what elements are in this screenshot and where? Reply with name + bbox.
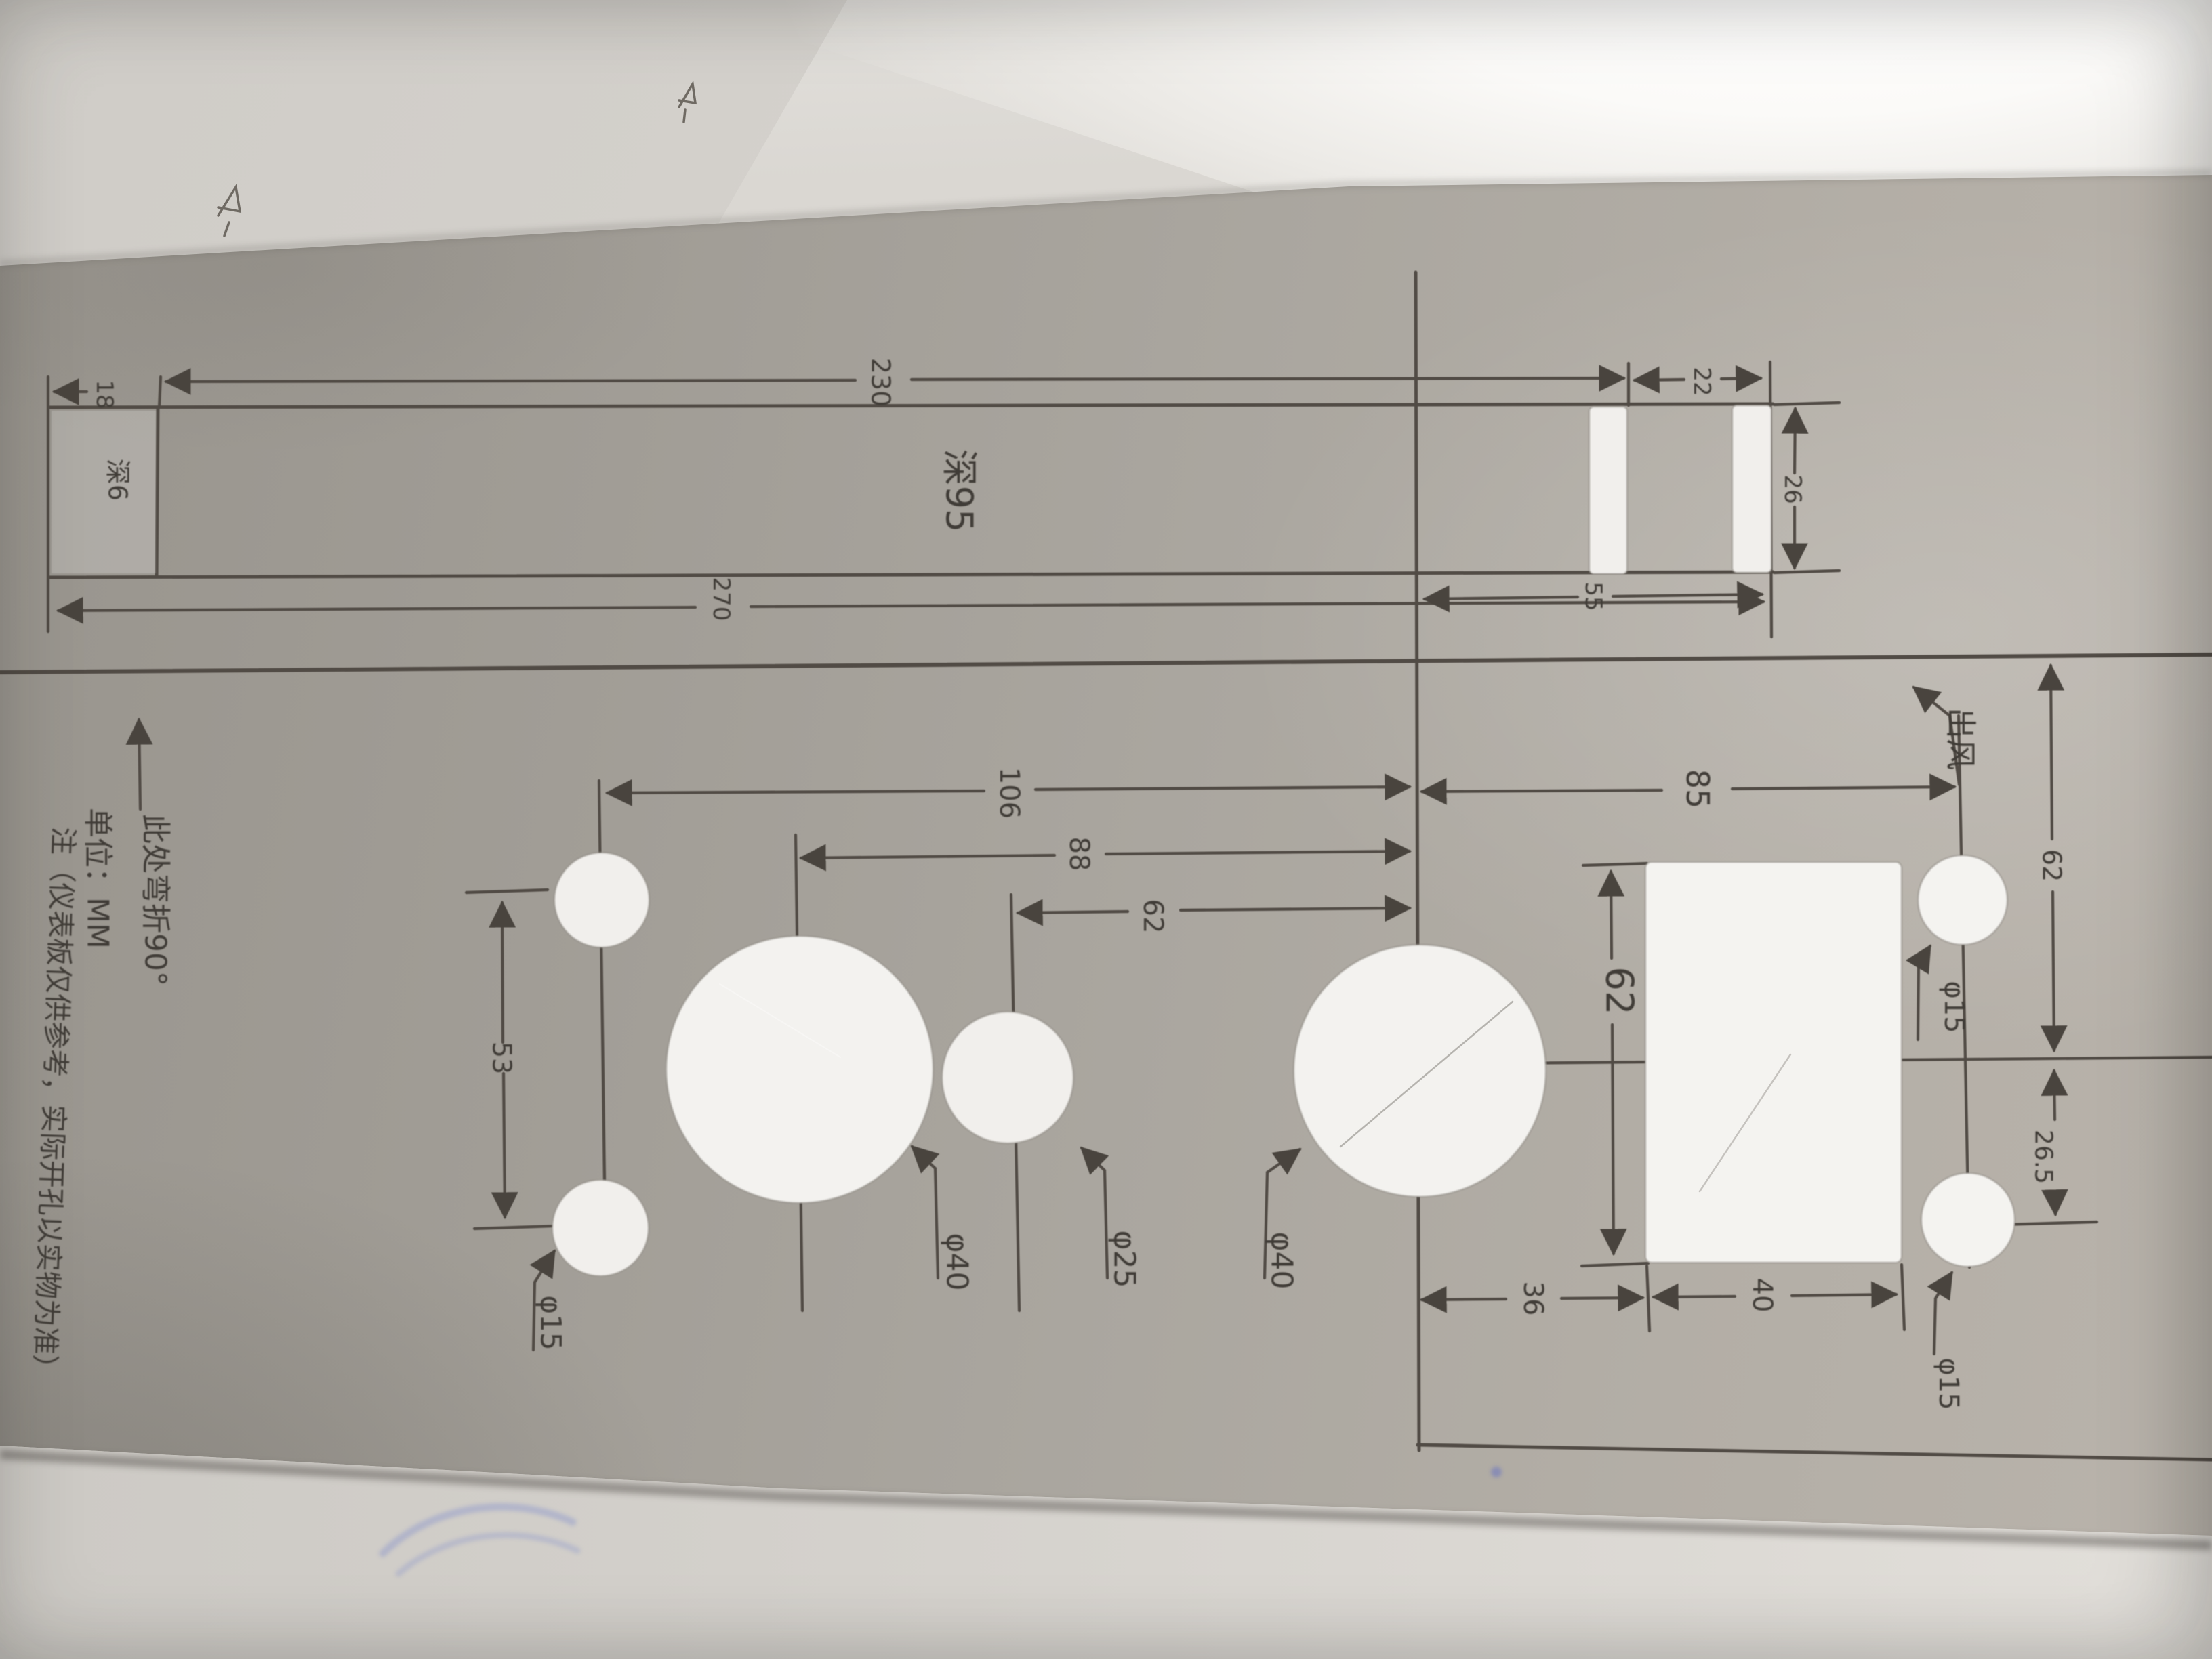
photo-vignette [0, 0, 2212, 1659]
photo-of-drawing: 230 18 深6 深95 270 22 26 55 106 88 62 53 … [0, 0, 2212, 1659]
